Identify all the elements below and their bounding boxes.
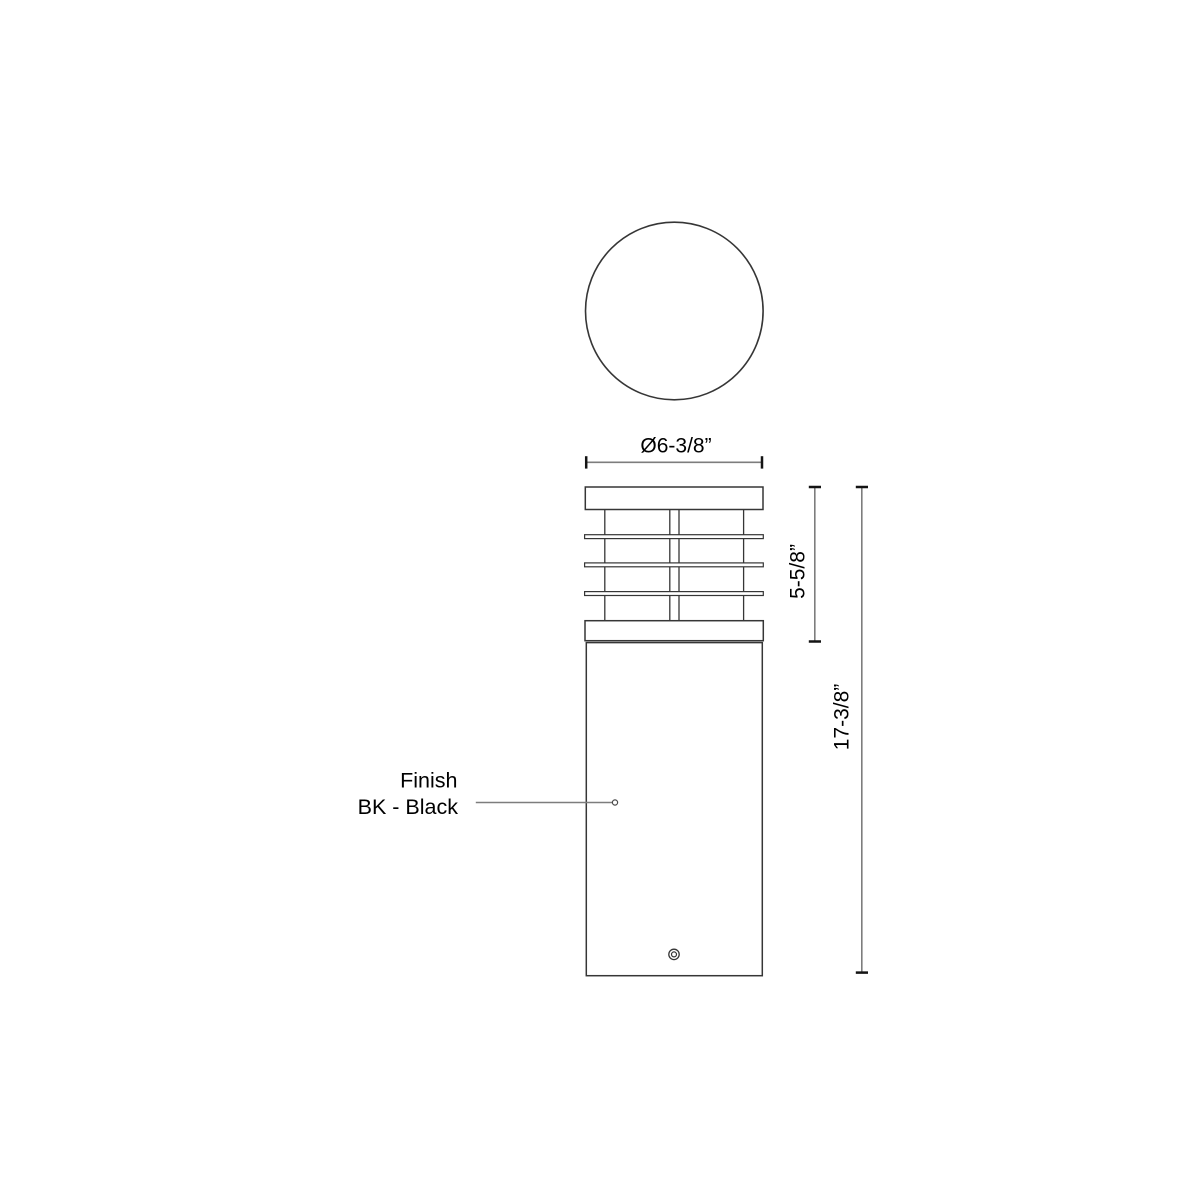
- svg-text:Finish: Finish: [400, 768, 457, 792]
- svg-text:17-3/8”: 17-3/8”: [831, 684, 854, 751]
- svg-text:BK - Black: BK - Black: [358, 795, 459, 819]
- svg-text:Ø6-3/8”: Ø6-3/8”: [640, 435, 711, 458]
- svg-text:5-5/8”: 5-5/8”: [786, 544, 809, 599]
